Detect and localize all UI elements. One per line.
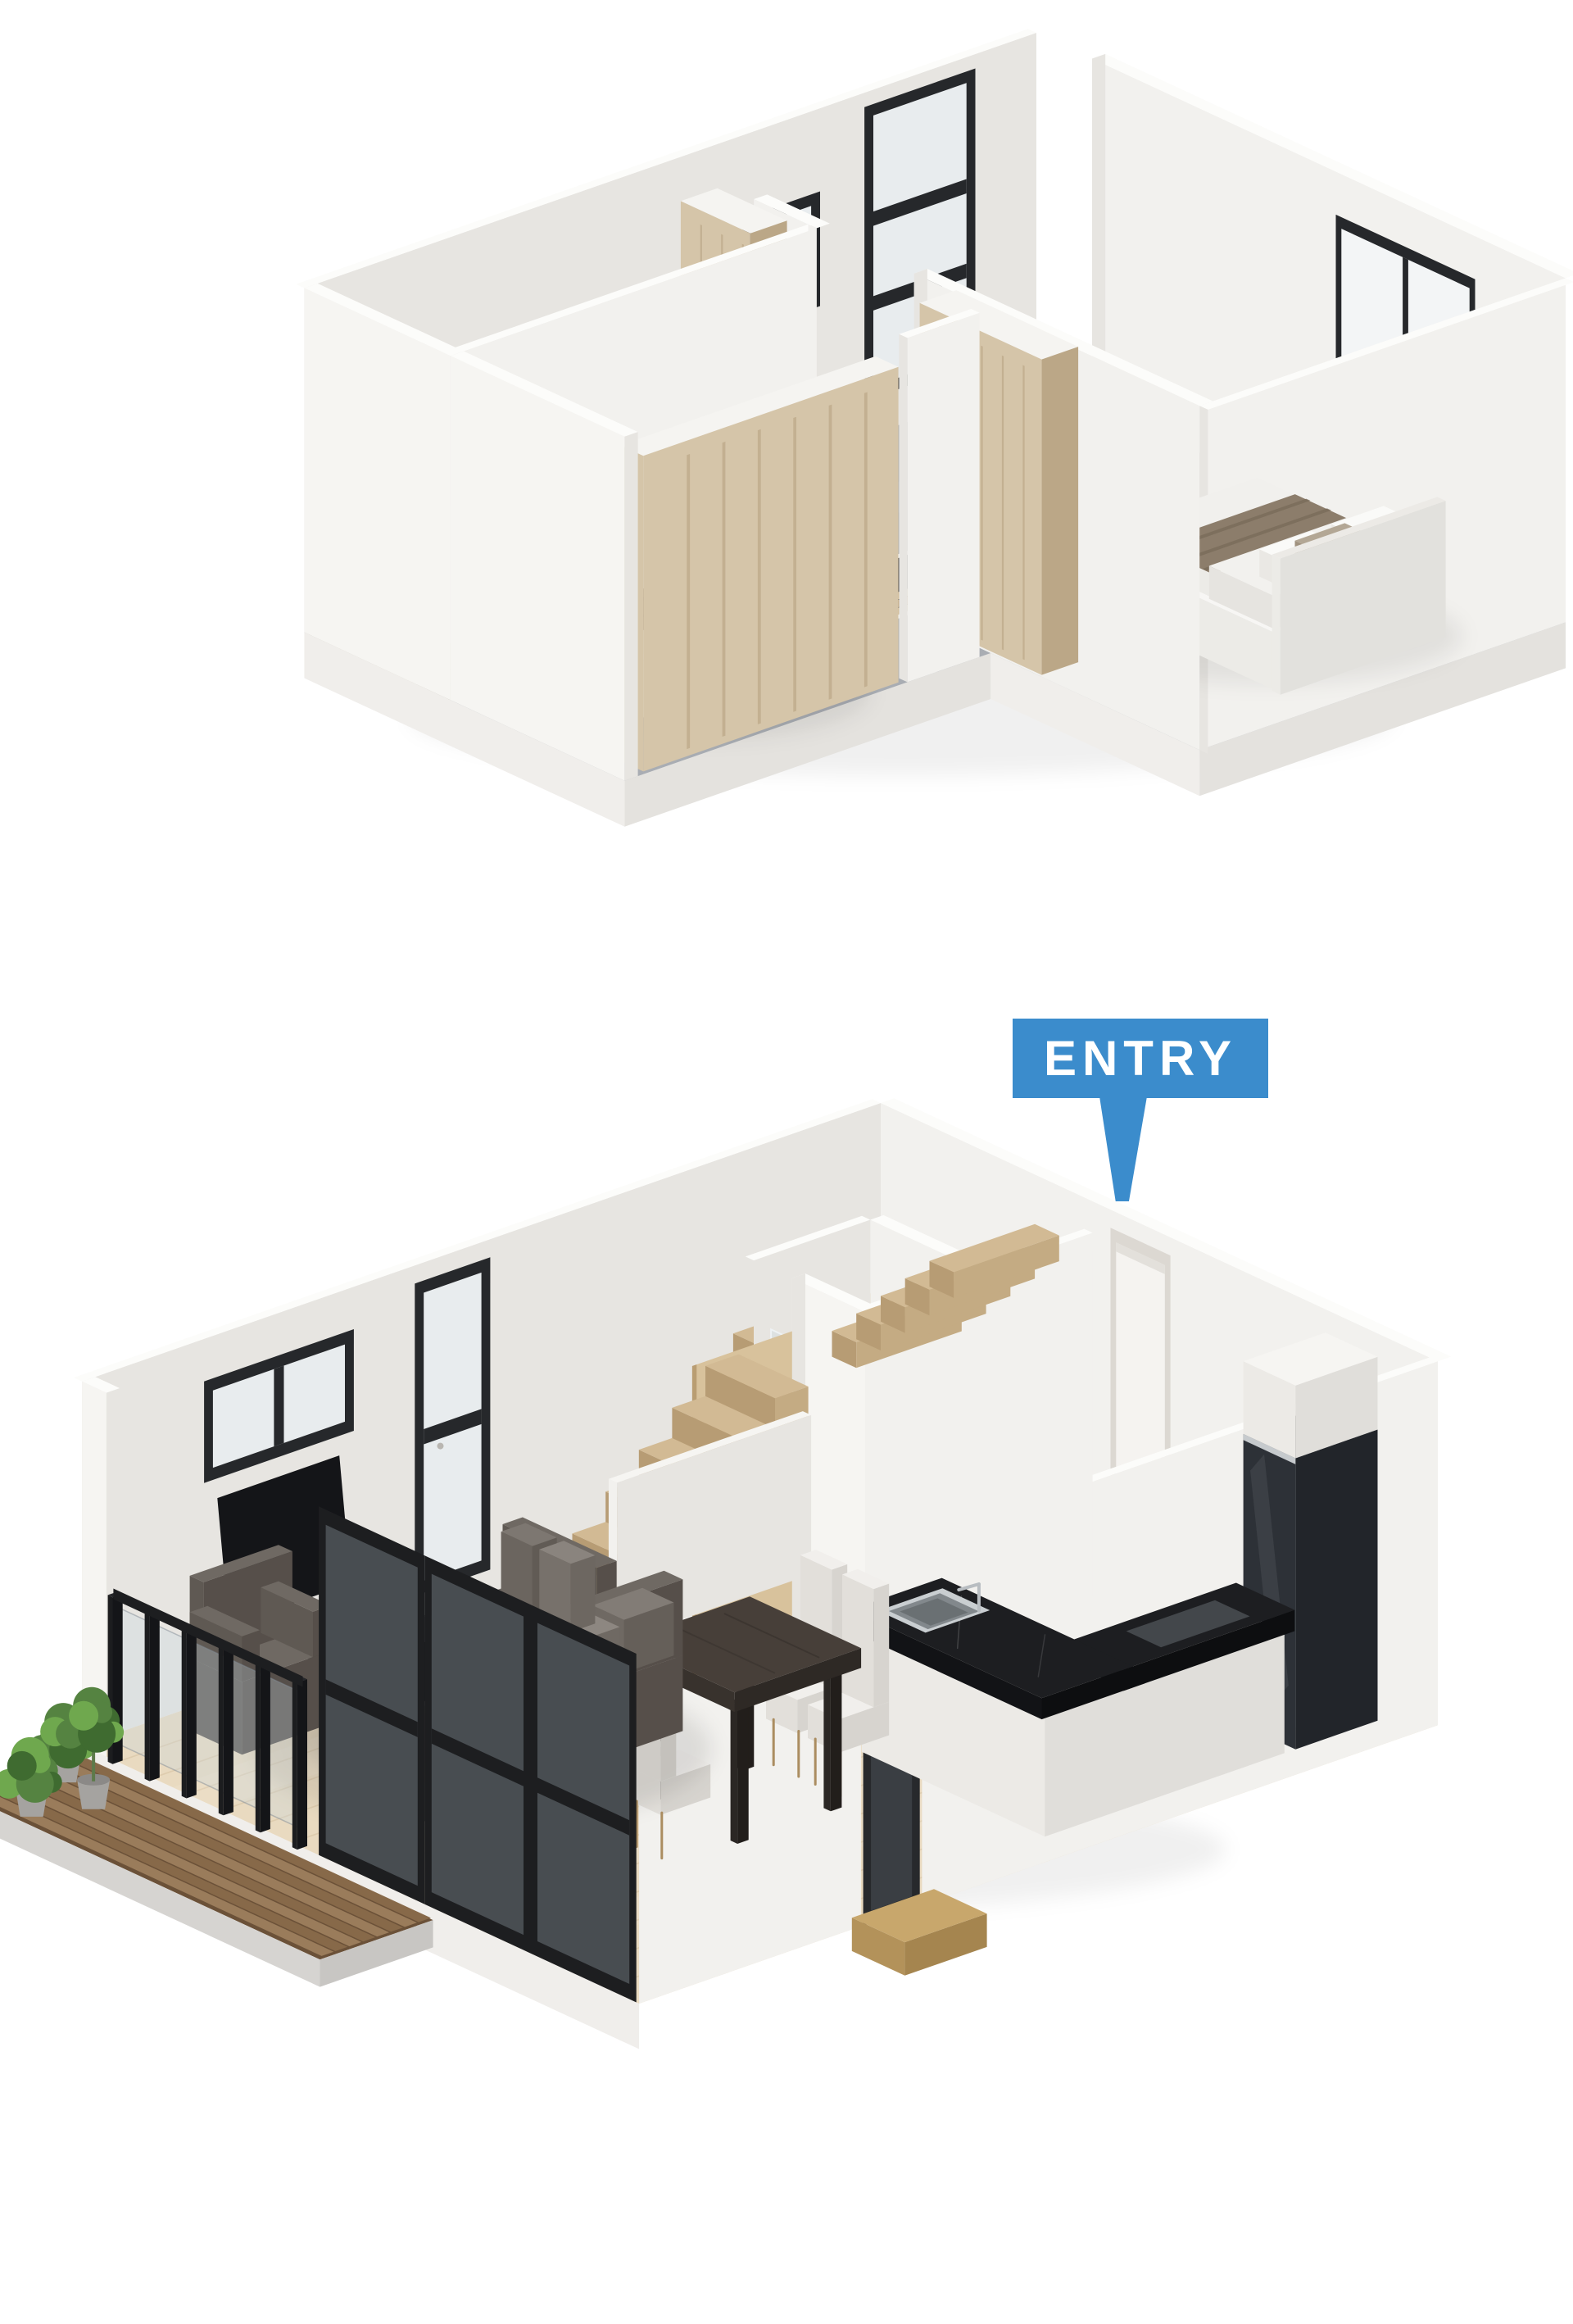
bedroom2-wall-stub [899, 309, 979, 682]
isometric-scene [0, 0, 1573, 2324]
upper-floor [296, 29, 1573, 827]
ground-floor [0, 1098, 1451, 2049]
floorplan-3d-render: ENTRY [0, 0, 1573, 2324]
tall-2-pane-window [415, 1257, 490, 1595]
entry-label: ENTRY [1013, 1019, 1268, 1098]
front-wall-bathroom [304, 284, 464, 700]
